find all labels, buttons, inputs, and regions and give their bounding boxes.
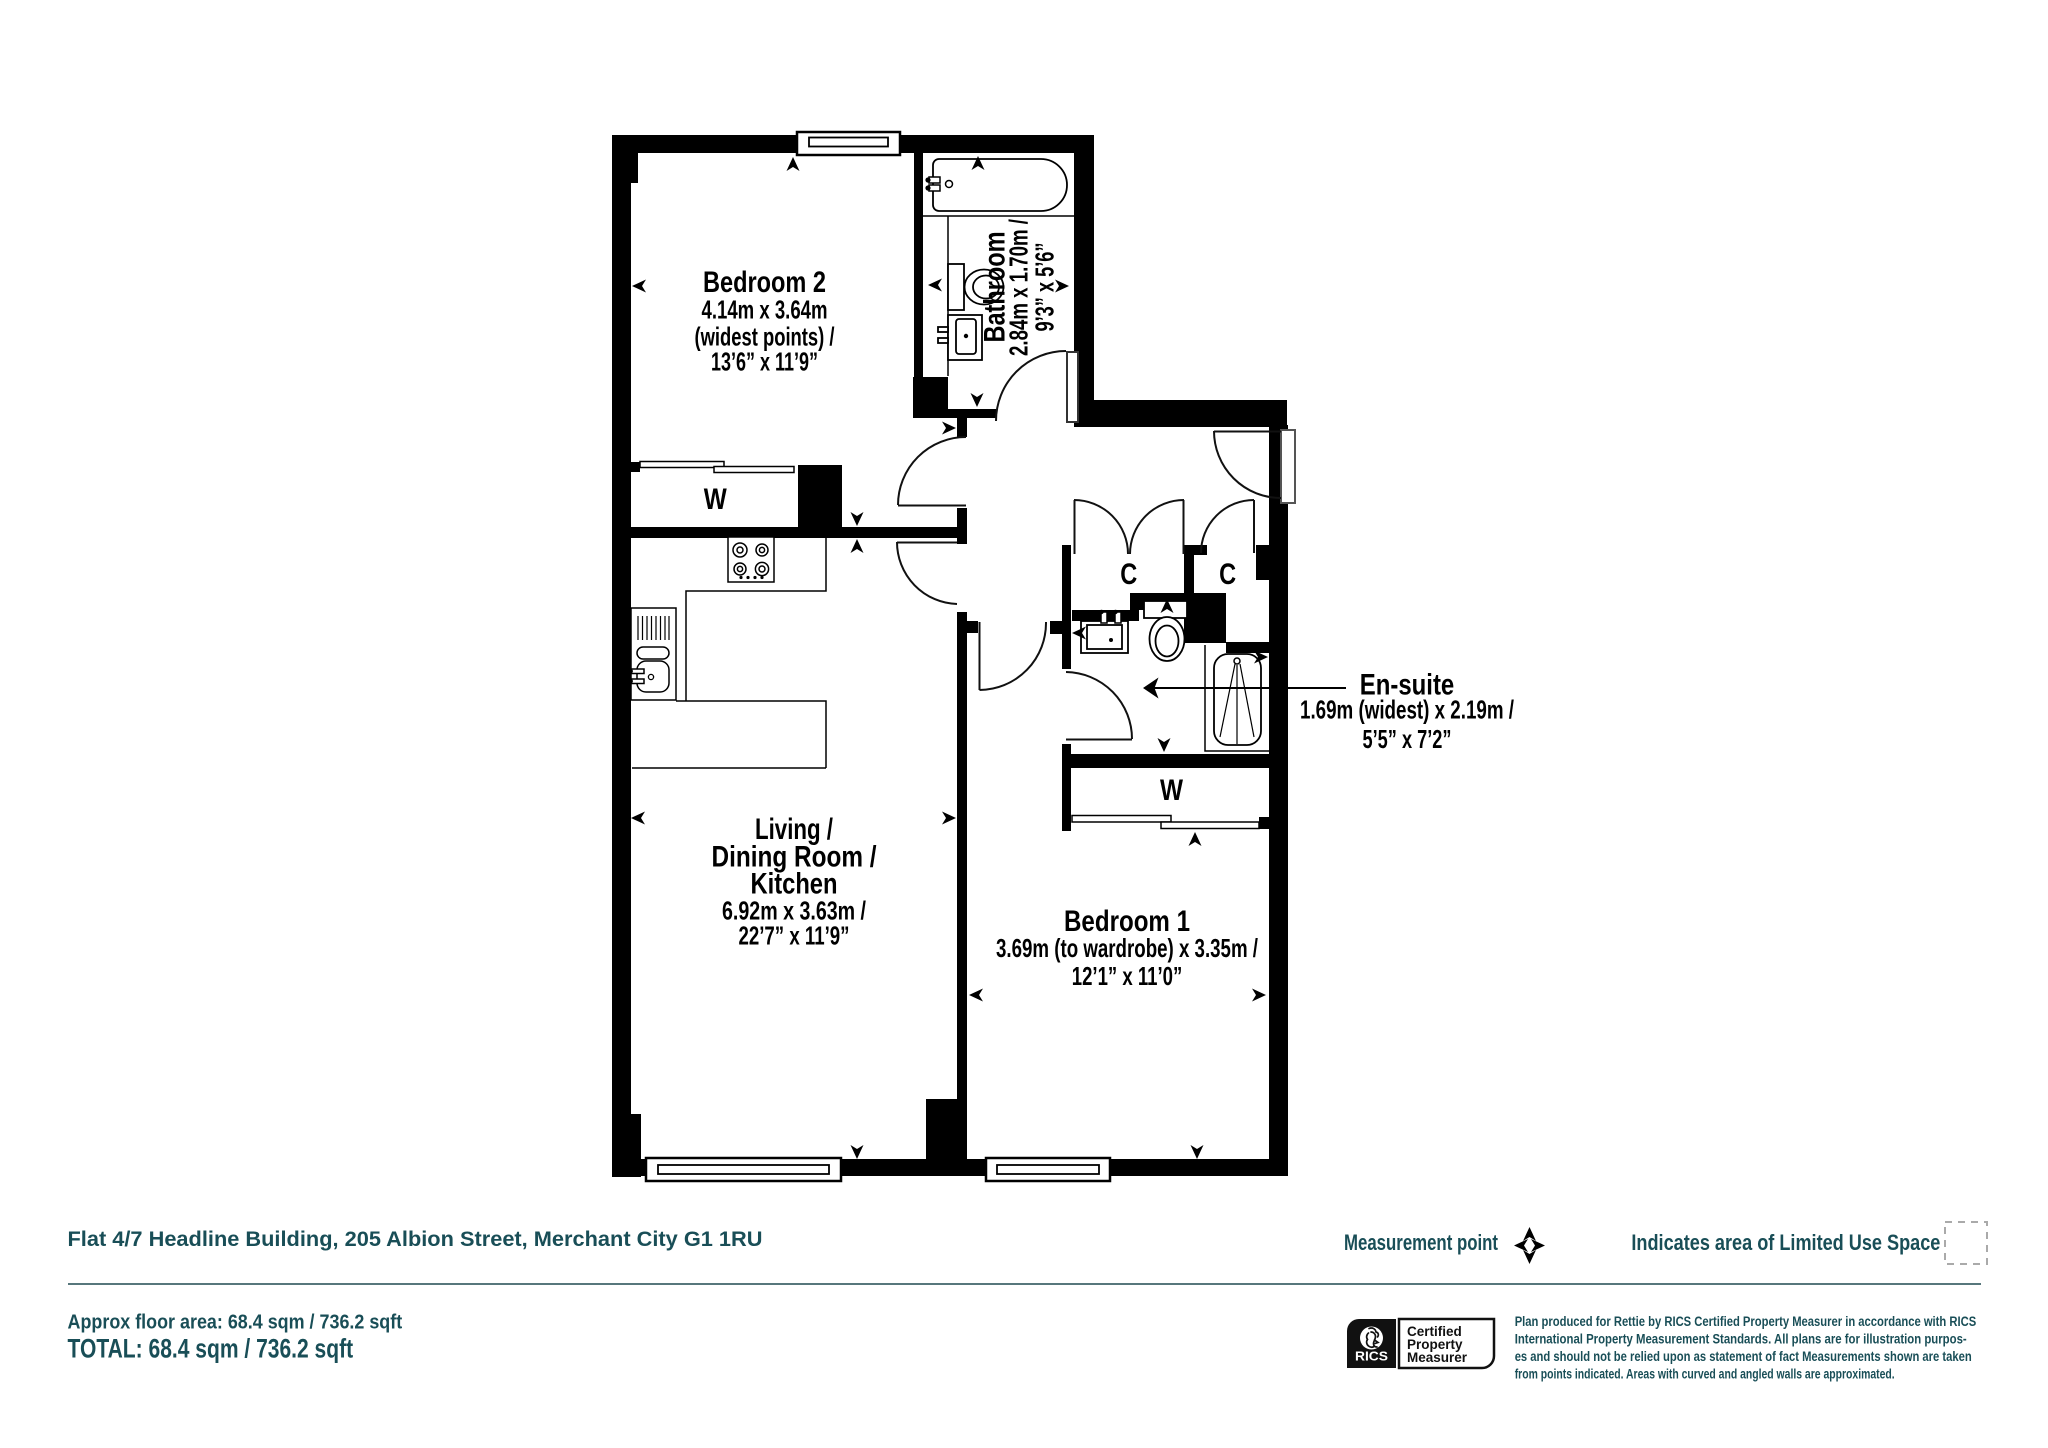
svg-text:12’1” x 11’0”: 12’1” x 11’0”: [1072, 961, 1183, 991]
svg-text:Measurer: Measurer: [1407, 1350, 1468, 1365]
svg-text:C: C: [1219, 558, 1236, 591]
svg-text:13’6” x 11’9”: 13’6” x 11’9”: [711, 347, 818, 377]
svg-text:Flat 4/7 Headline Building, 20: Flat 4/7 Headline Building, 205 Albion S…: [68, 1227, 763, 1251]
svg-text:Measurement point: Measurement point: [1344, 1230, 1499, 1255]
svg-text:9’3” x 5’6”: 9’3” x 5’6”: [1029, 243, 1059, 332]
svg-text:Indicates area of Limited Use: Indicates area of Limited Use Space: [1631, 1230, 1940, 1255]
svg-text:W: W: [1160, 774, 1184, 807]
svg-text:4.14m x 3.64m: 4.14m x 3.64m: [702, 295, 828, 325]
svg-text:RICS: RICS: [1355, 1349, 1388, 1364]
svg-text:es and should not be relied up: es and should not be relied upon as stat…: [1515, 1349, 1972, 1364]
svg-text:C: C: [1120, 558, 1137, 591]
svg-text:Plan produced for Rettie by RI: Plan produced for Rettie by RICS Certifi…: [1515, 1314, 1977, 1329]
svg-text:5’5” x 7’2”: 5’5” x 7’2”: [1363, 724, 1452, 754]
svg-text:3.69m (to wardrobe) x 3.35m /: 3.69m (to wardrobe) x 3.35m /: [996, 933, 1258, 963]
svg-text:22’7” x 11’9”: 22’7” x 11’9”: [739, 920, 850, 950]
svg-text:TOTAL: 68.4 sqm / 736.2 sqft: TOTAL: 68.4 sqm / 736.2 sqft: [68, 1333, 354, 1363]
svg-text:Approx floor area: 68.4 sqm /: Approx floor area: 68.4 sqm / 736.2 sqft: [68, 1312, 403, 1334]
svg-text:from points indicated. Areas w: from points indicated. Areas with curved…: [1515, 1366, 1895, 1381]
svg-text:International Property Measur: International Property Measurement Stand…: [1515, 1332, 1967, 1347]
svg-text:W: W: [704, 483, 728, 516]
svg-text:1.69m (widest) x 2.19m /: 1.69m (widest) x 2.19m /: [1300, 694, 1514, 724]
